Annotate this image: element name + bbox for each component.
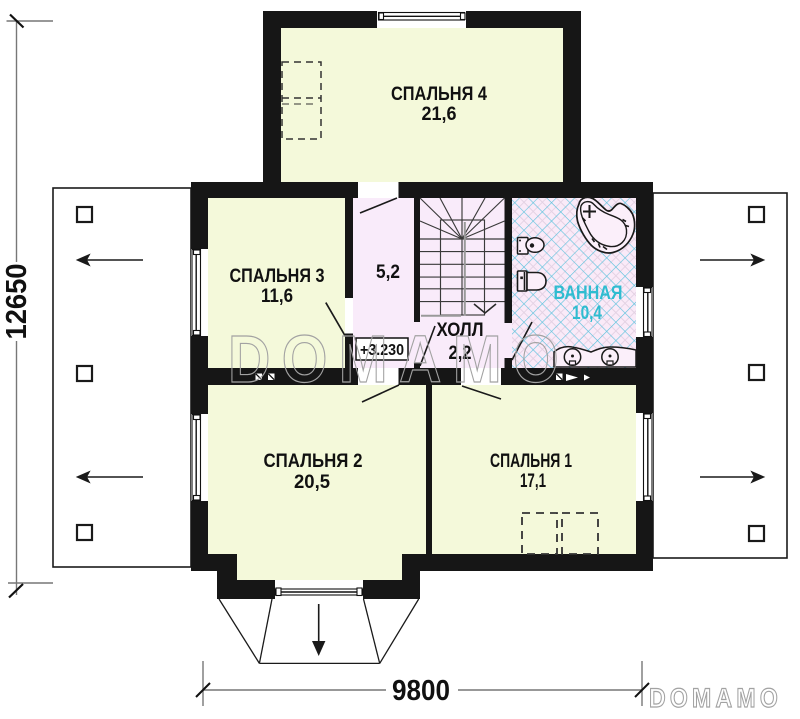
svg-text:21,6: 21,6 [422,104,457,125]
svg-text:DOMAMO: DOMAMO [228,322,570,397]
svg-text:12650: 12650 [1,264,33,340]
svg-text:ВАННАЯ: ВАННАЯ [554,283,623,304]
svg-text:СПАЛЬНЯ 3: СПАЛЬНЯ 3 [230,266,325,287]
svg-text:СПАЛЬНЯ 1: СПАЛЬНЯ 1 [490,451,572,472]
svg-text:СПАЛЬНЯ 4: СПАЛЬНЯ 4 [391,84,487,105]
svg-text:DOMAMO: DOMAMO [649,683,782,713]
svg-text:9800: 9800 [392,675,450,707]
svg-text:СПАЛЬНЯ 2: СПАЛЬНЯ 2 [264,451,363,472]
svg-text:5,2: 5,2 [376,262,400,283]
svg-text:17,1: 17,1 [520,471,546,492]
svg-text:11,6: 11,6 [261,286,293,307]
svg-text:10,4: 10,4 [572,303,602,324]
svg-text:20,5: 20,5 [294,472,330,493]
